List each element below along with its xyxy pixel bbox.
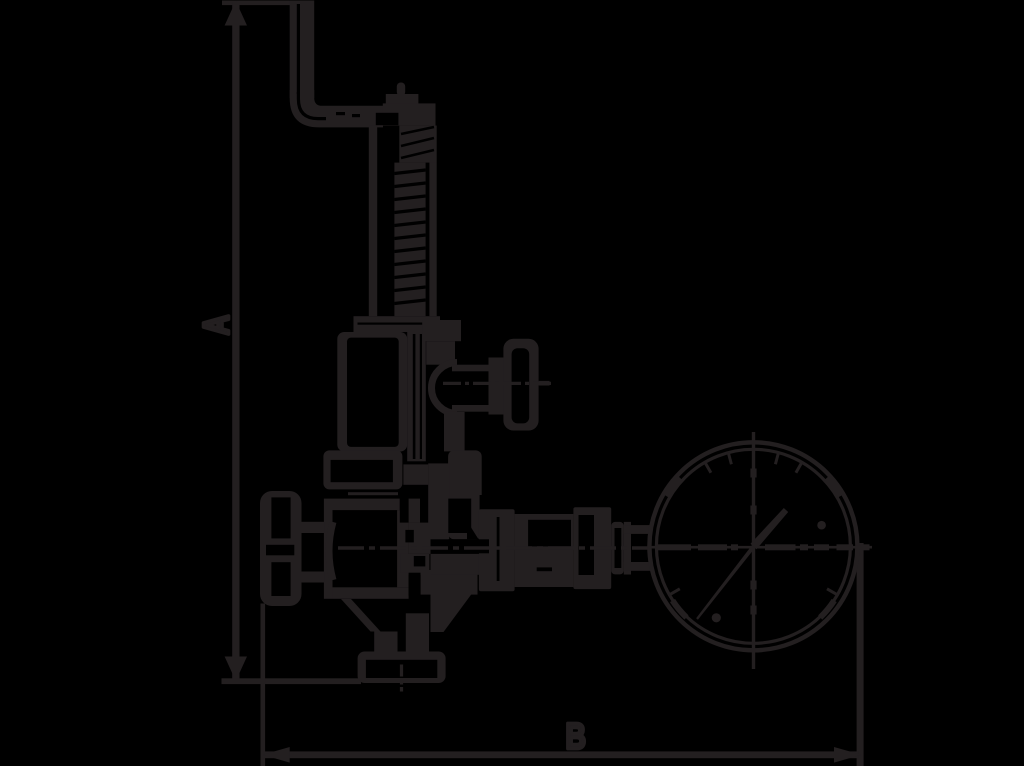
svg-text:A: A xyxy=(196,315,236,335)
svg-text:B: B xyxy=(566,716,586,756)
